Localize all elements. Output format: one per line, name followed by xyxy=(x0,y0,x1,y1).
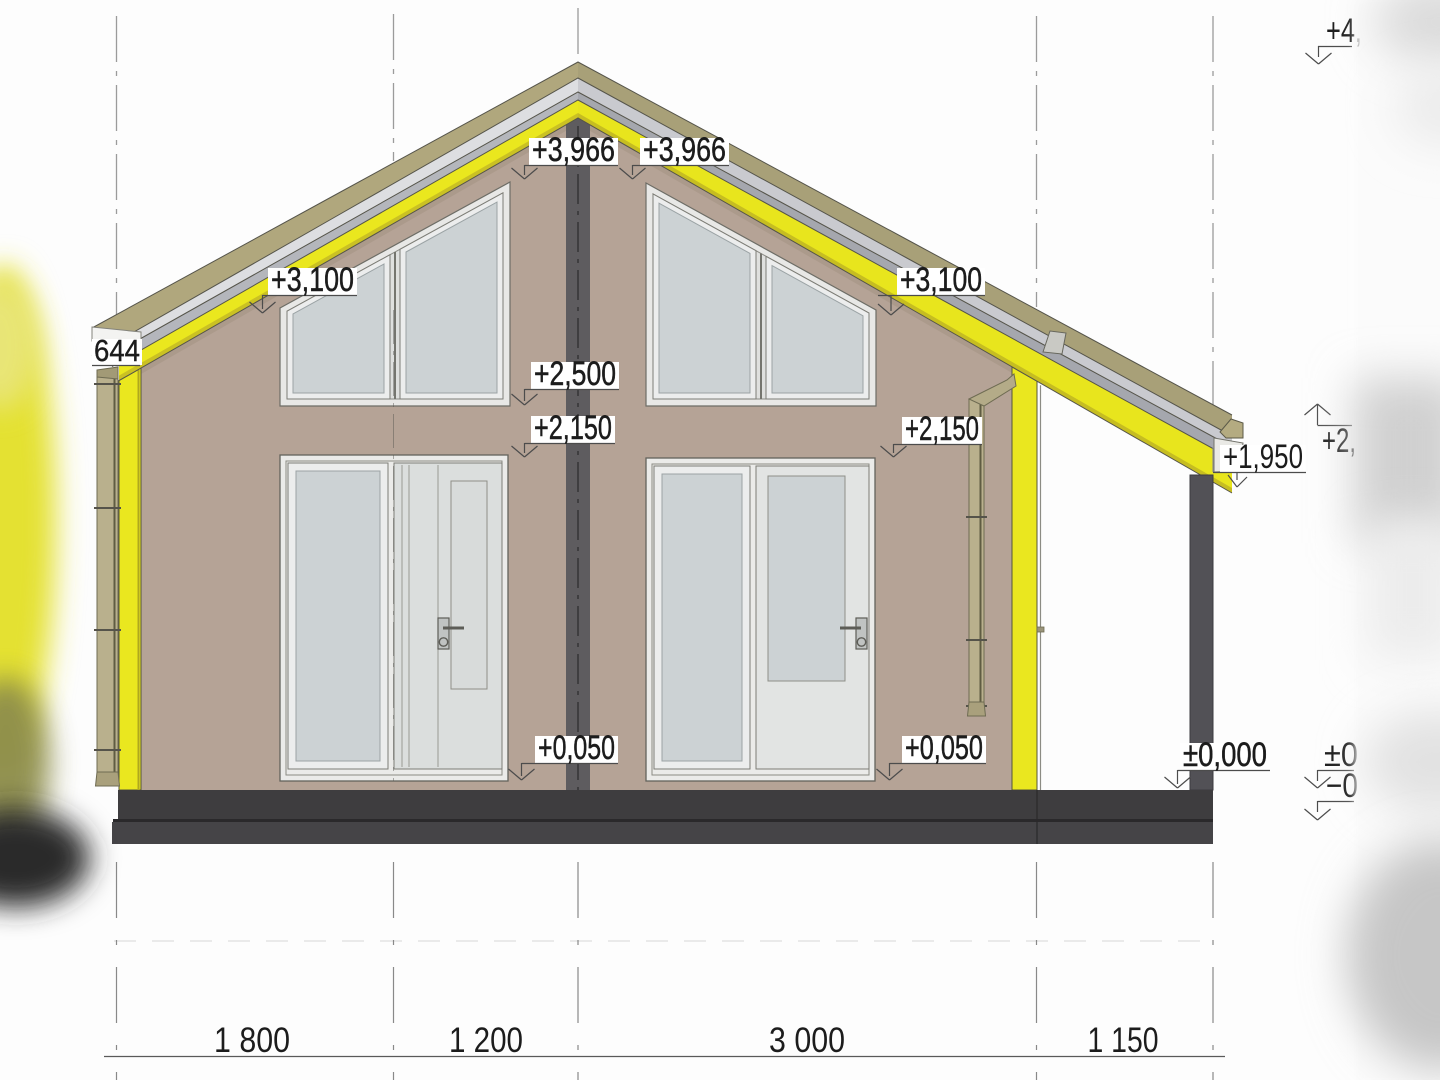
svg-text:+2,150: +2,150 xyxy=(534,409,612,447)
svg-text:+3,966: +3,966 xyxy=(643,131,726,169)
svg-text:644: 644 xyxy=(94,333,140,368)
svg-text:±0,000: ±0,000 xyxy=(1183,736,1267,774)
svg-text:+2,150: +2,150 xyxy=(905,410,979,448)
svg-text:1 150: 1 150 xyxy=(1088,1021,1159,1060)
svg-text:1 800: 1 800 xyxy=(214,1021,290,1060)
svg-text:+2,500: +2,500 xyxy=(534,355,616,393)
svg-text:1 200: 1 200 xyxy=(449,1021,523,1060)
svg-text:−0: −0 xyxy=(1326,767,1358,805)
svg-text:+0,050: +0,050 xyxy=(538,729,615,767)
svg-text:+2,: +2, xyxy=(1322,422,1356,460)
svg-text:+1,950: +1,950 xyxy=(1223,438,1303,476)
svg-text:+3,966: +3,966 xyxy=(532,131,615,169)
svg-text:+0,050: +0,050 xyxy=(905,729,983,767)
svg-text:3 000: 3 000 xyxy=(769,1021,845,1060)
svg-text:+3,100: +3,100 xyxy=(900,261,982,299)
svg-text:+3,100: +3,100 xyxy=(271,261,354,299)
